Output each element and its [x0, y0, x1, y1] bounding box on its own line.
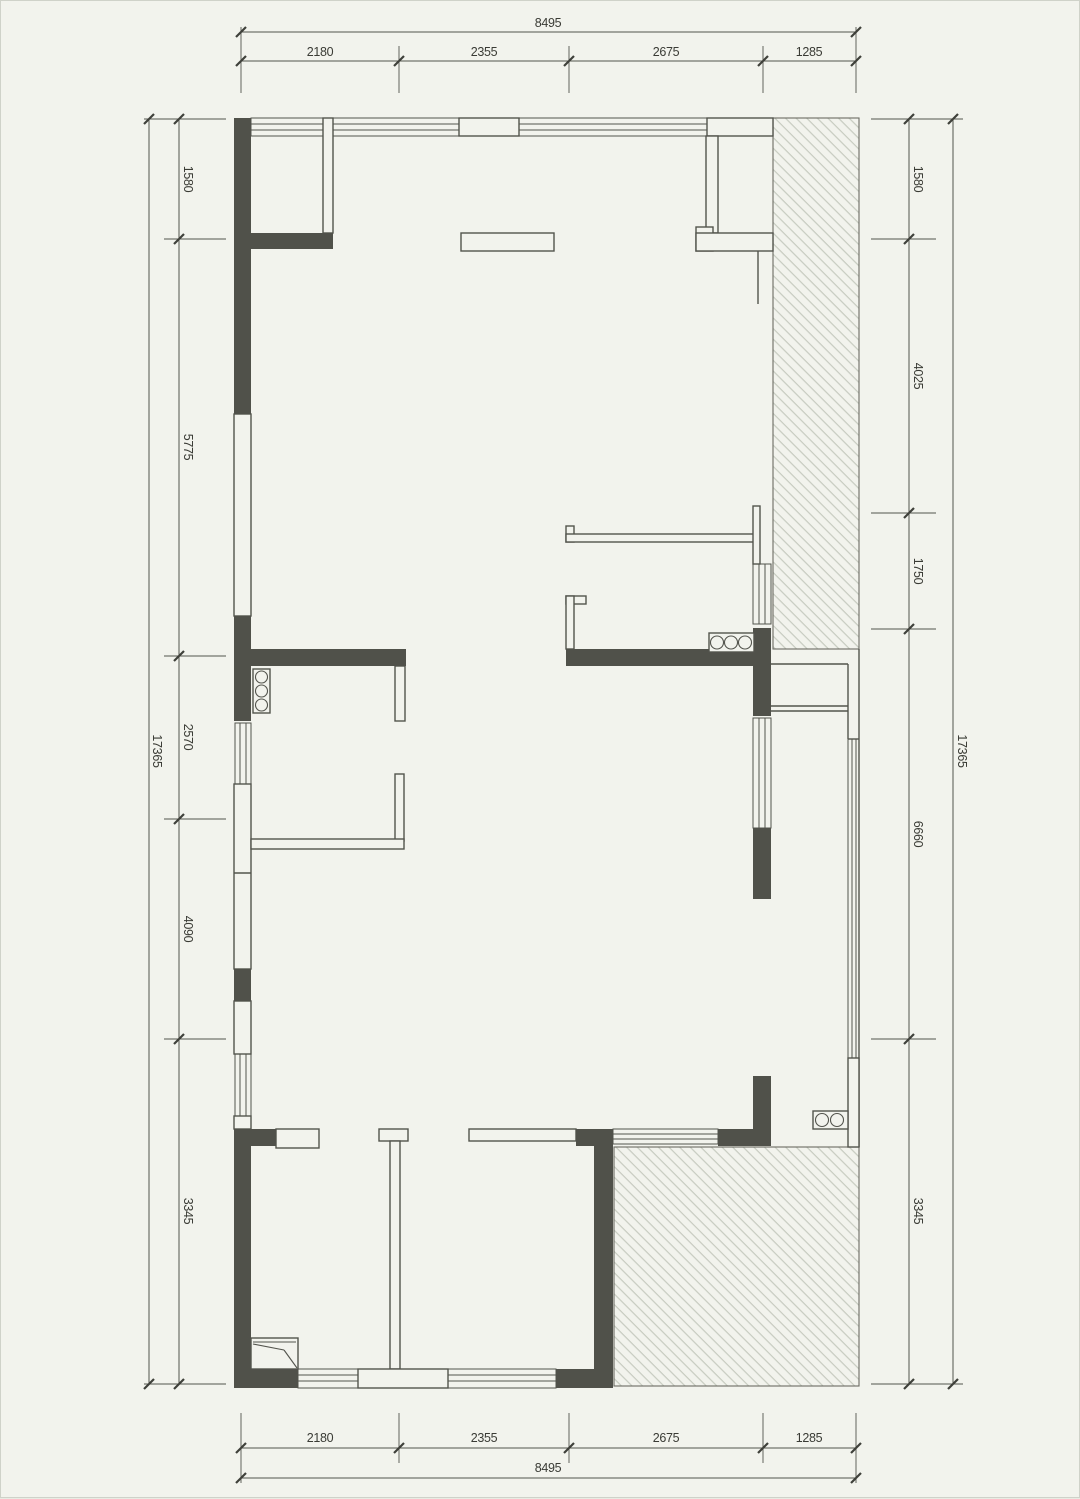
dim-left-segment-1: 5775	[181, 434, 195, 461]
wardrobe-outline	[461, 233, 554, 251]
left-dimensions: 1580 5775 2570 4090 3345 17365	[144, 114, 226, 1389]
gas-hob-icon-kitchen-left	[253, 669, 270, 713]
hatch-terrace-top-right	[773, 118, 859, 649]
floor-plan-page: 8495 2180 2355 2675 1285 2180 2355 2675 …	[0, 0, 1080, 1498]
dim-left-segment-2: 2570	[181, 724, 195, 751]
dim-right-segment-1: 4025	[911, 363, 925, 390]
dim-top-segment-1: 2355	[471, 45, 498, 59]
gas-hob-icon-kitchen-right	[709, 633, 754, 652]
right-dimensions: 1580 4025 1750 6660 3345 17365	[871, 114, 969, 1389]
dim-right-segment-0: 1580	[911, 166, 925, 193]
bottom-dimensions: 2180 2355 2675 1285 8495	[236, 1413, 861, 1483]
dim-top-total: 8495	[535, 16, 562, 30]
dim-left-segment-4: 3345	[181, 1198, 195, 1225]
dim-right-segment-2: 1750	[911, 558, 925, 585]
floor-plan-canvas: 8495 2180 2355 2675 1285 2180 2355 2675 …	[1, 1, 1080, 1499]
dim-bottom-segment-3: 1285	[796, 1431, 823, 1445]
dim-left-segment-0: 1580	[181, 166, 195, 193]
top-dimensions: 8495 2180 2355 2675 1285	[236, 16, 861, 93]
dim-top-segment-0: 2180	[307, 45, 334, 59]
dim-bottom-segment-1: 2355	[471, 1431, 498, 1445]
corner-shower-icon	[251, 1338, 298, 1369]
dim-bottom-total: 8495	[535, 1461, 562, 1475]
dim-right-segment-3: 6660	[911, 821, 925, 848]
dim-right-total: 17365	[955, 734, 969, 768]
dim-right-segment-4: 3345	[911, 1198, 925, 1225]
hatch-terrace-bottom-right	[614, 1147, 859, 1386]
right-dimension-extension-lines	[871, 119, 963, 1384]
dim-top-segment-2: 2675	[653, 45, 680, 59]
double-basin-sink-icon	[813, 1111, 848, 1129]
dim-top-segment-3: 1285	[796, 45, 823, 59]
dim-left-total: 17365	[150, 734, 164, 768]
dim-left-segment-3: 4090	[181, 916, 195, 943]
dim-bottom-segment-2: 2675	[653, 1431, 680, 1445]
dim-bottom-segment-0: 2180	[307, 1431, 334, 1445]
